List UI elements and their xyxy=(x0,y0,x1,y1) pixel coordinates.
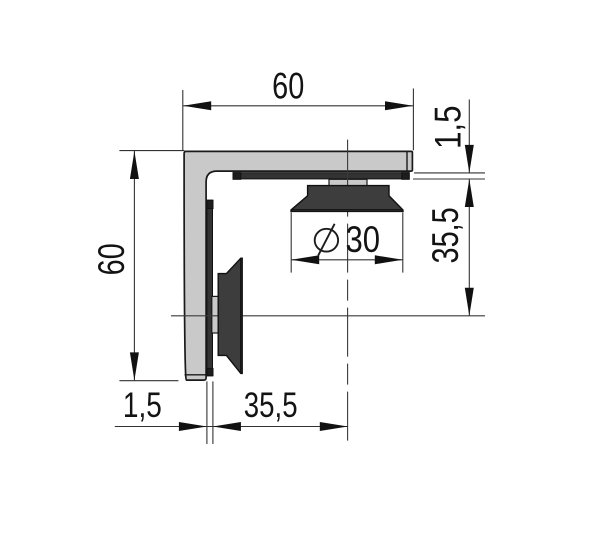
svg-text:35,5: 35,5 xyxy=(244,385,298,425)
svg-text:1,5: 1,5 xyxy=(123,385,162,425)
svg-text:35,5: 35,5 xyxy=(426,207,467,263)
svg-text:60: 60 xyxy=(272,66,304,107)
svg-text:60: 60 xyxy=(91,243,132,275)
svg-text:30: 30 xyxy=(346,220,381,261)
svg-text:1,5: 1,5 xyxy=(428,105,469,149)
